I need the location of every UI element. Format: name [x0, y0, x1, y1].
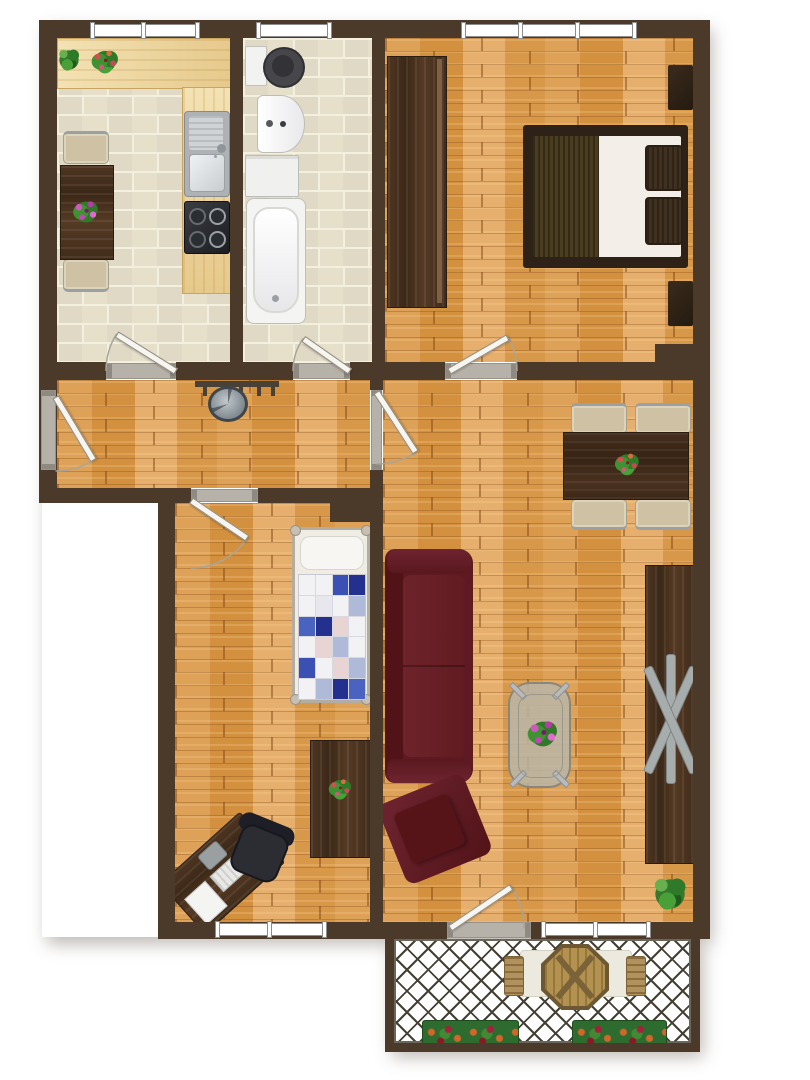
kitchen-plant-green — [55, 45, 83, 75]
basin-drain — [280, 121, 286, 127]
kitchen-window — [92, 24, 200, 37]
basin-faucet — [266, 120, 273, 127]
coat-hook — [271, 386, 275, 396]
wall-mid-3 — [350, 362, 445, 380]
kids-pillow — [300, 536, 364, 570]
coat-hook — [257, 386, 261, 396]
bed-blanket — [533, 136, 599, 257]
double-bed — [523, 125, 688, 268]
window-tick — [461, 22, 466, 39]
wall-kids-top-a — [158, 488, 191, 503]
coat-rack — [195, 381, 279, 387]
nightstand-top — [668, 65, 693, 110]
window-tick — [256, 22, 261, 39]
dining-chair — [635, 403, 691, 434]
wardrobe-edge — [437, 59, 442, 303]
wall-kids-left — [158, 488, 175, 939]
sink-basin — [189, 154, 225, 192]
wall-outer-right — [693, 20, 710, 939]
sofa-back — [385, 555, 403, 777]
living-room-plant — [648, 872, 692, 916]
ceiling-lamp — [208, 386, 248, 422]
washing-machine — [245, 155, 299, 197]
sideboard-plant — [326, 775, 354, 803]
floor-plan — [0, 0, 810, 1080]
threshold-kids-door — [191, 489, 258, 502]
wall-mid-2 — [176, 362, 293, 380]
kitchen-table-bouquet — [70, 196, 102, 228]
balcony-chair-left — [504, 956, 524, 996]
nightstand-bottom — [668, 281, 693, 326]
wall-hall-living-lower — [370, 470, 383, 922]
kids-room-window — [217, 923, 327, 936]
kitchen-chair-top — [63, 131, 109, 164]
wall-kids-corner-block — [330, 488, 383, 522]
wall-hall-bottom — [39, 488, 158, 503]
window-tick — [327, 22, 332, 39]
wall-kids-top-b — [258, 488, 330, 503]
bedroom-wardrobe — [387, 56, 447, 308]
wall-mid-1 — [39, 362, 106, 380]
toilet-lid-inner — [272, 55, 294, 77]
kids-quilt — [298, 574, 366, 700]
coat-hook — [203, 386, 207, 396]
window-tick — [518, 22, 523, 39]
wall-balcony-right — [691, 937, 700, 1052]
dining-chair — [571, 499, 627, 530]
bathtub-drain — [272, 295, 279, 302]
bedroom-window — [463, 24, 637, 37]
kitchen-sink — [184, 111, 230, 197]
window-tick — [215, 921, 220, 938]
toilet-seat — [263, 47, 305, 88]
bed-pillow — [645, 197, 683, 245]
kitchen-plant-flowers — [88, 46, 122, 77]
kitchen-chair-bottom — [63, 259, 109, 292]
burner — [189, 208, 206, 225]
window-tick — [195, 22, 200, 39]
window-tick — [593, 921, 598, 938]
window-tick — [646, 921, 651, 938]
dining-chair — [635, 499, 691, 530]
window-tick — [90, 22, 95, 39]
window-tick — [267, 921, 272, 938]
wall-kitchen-bathroom — [230, 38, 243, 365]
sofa-armrest-top — [387, 549, 471, 573]
wall-mid-4 — [517, 362, 693, 380]
sofa-cushion-seam — [403, 665, 465, 667]
wall-bathroom-bedroom — [372, 38, 385, 365]
bathroom-window — [258, 24, 332, 37]
burner — [209, 208, 226, 225]
sink-faucet — [217, 144, 226, 153]
coffee-table-plant — [524, 715, 562, 753]
burner — [189, 231, 206, 248]
dining-table-bouquet — [612, 449, 642, 479]
window-tick — [141, 22, 146, 39]
window-tick — [575, 22, 580, 39]
wall-hall-living-upper — [370, 362, 383, 390]
bathtub — [246, 198, 306, 324]
single-bed — [292, 527, 370, 703]
bed-knob — [290, 525, 301, 536]
burner — [209, 231, 226, 248]
wall-bedroom-corner-block — [655, 344, 693, 362]
window-tick — [632, 22, 637, 39]
wall-balcony-left — [385, 937, 394, 1052]
wash-basin — [257, 95, 305, 153]
kitchen-counter-top — [57, 38, 232, 89]
living-cabinet — [645, 565, 695, 864]
bed-pillow — [645, 145, 683, 191]
window-tick — [541, 921, 546, 938]
window-tick — [322, 921, 327, 938]
wall-balcony-bottom — [385, 1043, 700, 1052]
sofa — [385, 549, 473, 783]
balcony-chair-right — [626, 956, 646, 996]
dining-chair — [571, 403, 627, 434]
stove — [184, 201, 230, 254]
balcony-table — [541, 944, 609, 1010]
